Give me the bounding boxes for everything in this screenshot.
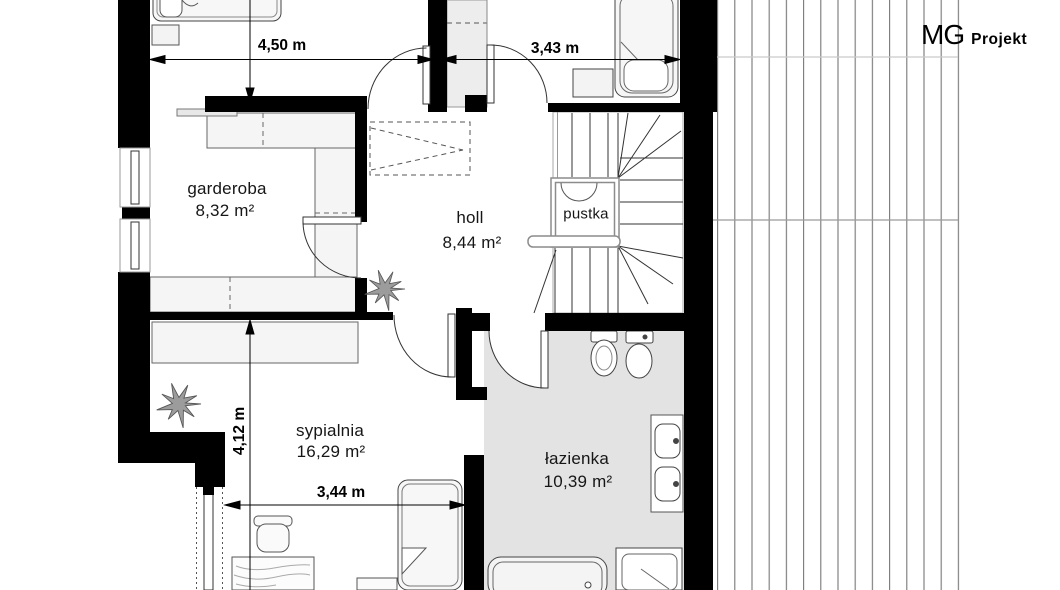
dimension-left-vertical: 4,12 m [231, 407, 249, 455]
brand-logo-projekt: Projekt [971, 31, 1027, 49]
plant-icon [157, 383, 201, 428]
floor-plan-page: garderoba 8,32 m² holl 8,44 m² pustka sy… [0, 0, 1060, 590]
room-area-lazienka: 10,39 m² [544, 472, 613, 492]
window-icon [120, 148, 150, 207]
toilet-icon [626, 331, 653, 378]
bed-sypialnia-icon [398, 480, 462, 590]
bidet-icon [591, 331, 617, 376]
room-area-sypialnia: 16,29 m² [297, 442, 366, 462]
window-icon [120, 219, 150, 272]
window-icon [197, 487, 223, 590]
washer-icon [573, 69, 613, 97]
plant-icon [365, 270, 405, 311]
attic-hatch-symbol [370, 122, 470, 175]
dimension-top-left: 4,50 m [258, 37, 306, 55]
room-label-lazienka: łazienka [545, 449, 609, 469]
chair-icon [254, 516, 292, 552]
nightstand-top-bedroom [152, 25, 179, 45]
handrail [528, 236, 620, 247]
room-label-pustka: pustka [563, 205, 608, 222]
brand-logo: MG Projekt [921, 21, 1027, 49]
desk-icon [232, 557, 314, 590]
bathtub-top-icon [615, 0, 678, 97]
roof-hatch-area [713, 0, 960, 590]
dimension-bottom: 3,44 m [317, 484, 365, 502]
dimension-top-right: 3,43 m [531, 40, 579, 58]
nightstand-sypialnia [357, 578, 397, 590]
bathtub-lazienka-icon [488, 557, 607, 590]
room-label-sypialnia: sypialnia [296, 421, 364, 441]
brand-logo-mg: MG [921, 21, 964, 49]
bed-top-bedroom [153, 0, 281, 21]
room-area-holl: 8,44 m² [442, 233, 501, 253]
room-label-holl: holl [456, 208, 483, 228]
room-area-garderoba: 8,32 m² [195, 201, 254, 221]
shower-icon [616, 548, 682, 590]
double-sink-vanity-icon [651, 415, 683, 512]
room-label-garderoba: garderoba [187, 179, 266, 199]
door-sypialnia [394, 314, 455, 377]
door-top-bedroom [368, 46, 430, 109]
shaft [447, 0, 487, 107]
floor-plan-drawing [0, 0, 1060, 590]
wardrobe-sypialnia [152, 322, 358, 363]
